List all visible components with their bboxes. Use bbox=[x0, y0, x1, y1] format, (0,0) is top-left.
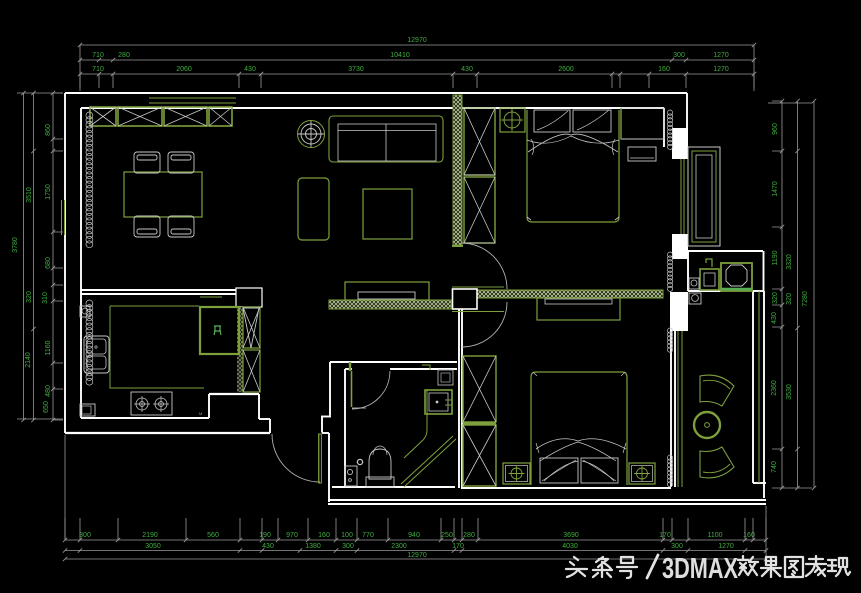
svg-text:3320: 3320 bbox=[786, 254, 793, 270]
svg-text:1270: 1270 bbox=[713, 66, 729, 73]
svg-text:M: M bbox=[199, 411, 202, 416]
svg-text:560: 560 bbox=[207, 532, 219, 539]
svg-text:100: 100 bbox=[341, 532, 353, 539]
svg-text:680: 680 bbox=[45, 257, 52, 269]
svg-text:320: 320 bbox=[786, 293, 793, 305]
svg-text:430: 430 bbox=[771, 312, 778, 324]
svg-text:710: 710 bbox=[92, 66, 104, 73]
svg-text:3050: 3050 bbox=[145, 543, 161, 550]
svg-text:710: 710 bbox=[92, 52, 104, 59]
svg-text:170: 170 bbox=[452, 543, 464, 550]
svg-text:300: 300 bbox=[671, 543, 683, 550]
svg-text:740: 740 bbox=[771, 461, 778, 473]
svg-text:3530: 3530 bbox=[786, 384, 793, 400]
svg-text:2300: 2300 bbox=[391, 543, 407, 550]
svg-text:1160: 1160 bbox=[45, 340, 52, 355]
svg-text:300: 300 bbox=[673, 52, 685, 59]
svg-text:320: 320 bbox=[26, 291, 33, 303]
svg-text:300: 300 bbox=[79, 532, 91, 539]
svg-text:4030: 4030 bbox=[562, 543, 578, 550]
svg-text:2060: 2060 bbox=[176, 66, 192, 73]
svg-text:960: 960 bbox=[772, 123, 779, 135]
svg-text:770: 770 bbox=[362, 532, 374, 539]
svg-text:970: 970 bbox=[286, 532, 298, 539]
svg-text:12970: 12970 bbox=[407, 37, 427, 44]
svg-text:1270: 1270 bbox=[713, 52, 729, 59]
svg-text:430: 430 bbox=[244, 66, 256, 73]
svg-text:3690: 3690 bbox=[563, 532, 579, 539]
svg-text:3780: 3780 bbox=[12, 237, 19, 253]
svg-text:940: 940 bbox=[408, 532, 420, 539]
svg-text:190: 190 bbox=[259, 532, 271, 539]
svg-text:280: 280 bbox=[118, 52, 130, 59]
svg-text:430: 430 bbox=[461, 66, 473, 73]
svg-text:320: 320 bbox=[772, 292, 779, 304]
svg-text:3DMAX: 3DMAX bbox=[662, 553, 738, 585]
svg-text:300: 300 bbox=[342, 543, 354, 550]
svg-text:280: 280 bbox=[463, 532, 475, 539]
svg-text:1270: 1270 bbox=[718, 543, 734, 550]
svg-text:2140: 2140 bbox=[25, 352, 32, 368]
svg-text:3730: 3730 bbox=[348, 66, 364, 73]
svg-text:7280: 7280 bbox=[802, 291, 809, 307]
svg-text:1100: 1100 bbox=[707, 532, 722, 539]
svg-text:1470: 1470 bbox=[772, 181, 779, 197]
svg-text:310: 310 bbox=[42, 292, 49, 304]
svg-text:2600: 2600 bbox=[558, 66, 574, 73]
svg-text:12970: 12970 bbox=[407, 552, 427, 559]
svg-text:1190: 1190 bbox=[772, 250, 779, 265]
svg-text:10410: 10410 bbox=[390, 52, 410, 59]
svg-text:1380: 1380 bbox=[305, 543, 321, 550]
svg-text:160: 160 bbox=[318, 532, 330, 539]
svg-text:1750: 1750 bbox=[45, 184, 52, 200]
svg-text:3510: 3510 bbox=[26, 187, 33, 203]
svg-text:860: 860 bbox=[45, 124, 52, 136]
svg-text:160: 160 bbox=[658, 66, 670, 73]
svg-text:650: 650 bbox=[43, 401, 50, 413]
svg-text:2190: 2190 bbox=[142, 532, 158, 539]
svg-text:2360: 2360 bbox=[771, 380, 778, 396]
